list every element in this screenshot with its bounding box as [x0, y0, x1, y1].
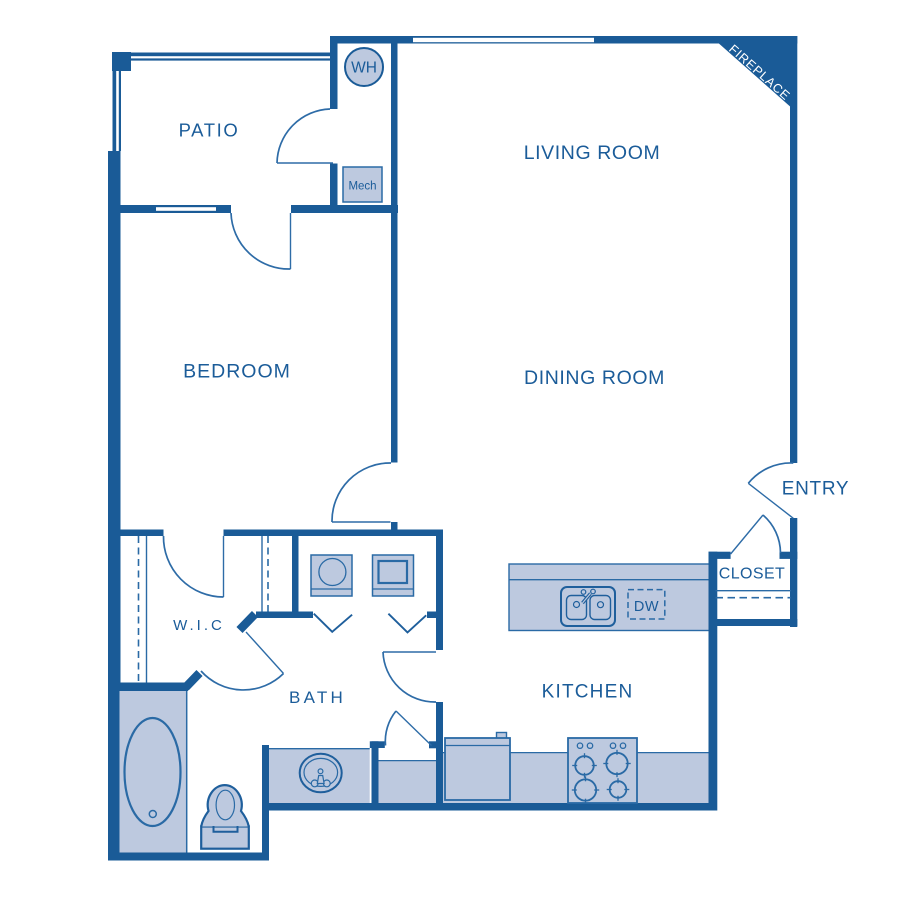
svg-text:Mech: Mech	[348, 181, 376, 193]
svg-text:CLOSET: CLOSET	[719, 566, 785, 583]
svg-text:LIVING ROOM: LIVING ROOM	[524, 142, 661, 164]
svg-text:WH: WH	[351, 60, 377, 77]
svg-text:DINING ROOM: DINING ROOM	[524, 367, 665, 389]
svg-text:W.I.C: W.I.C	[173, 617, 225, 634]
svg-text:DW: DW	[634, 599, 659, 615]
svg-text:PATIO: PATIO	[179, 120, 240, 141]
svg-text:BEDROOM: BEDROOM	[183, 361, 291, 383]
svg-text:ENTRY: ENTRY	[782, 478, 850, 499]
svg-text:KITCHEN: KITCHEN	[542, 681, 634, 702]
svg-text:BATH: BATH	[289, 688, 346, 707]
